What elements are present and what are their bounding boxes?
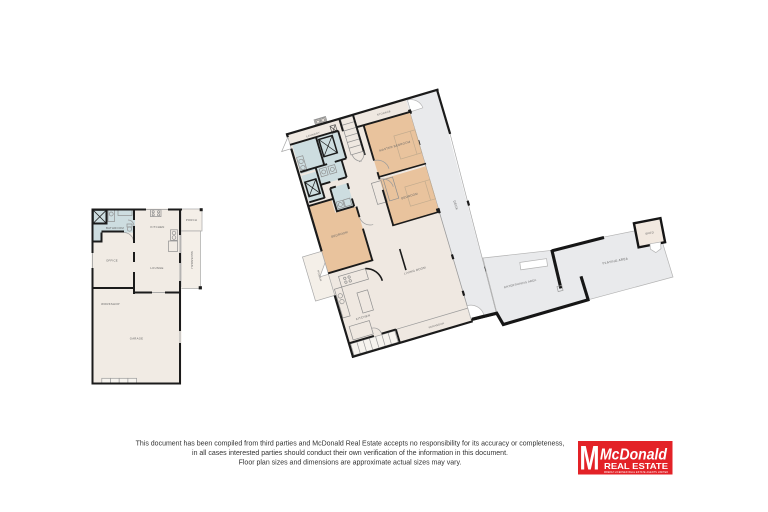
svg-text:WORKSHOP: WORKSHOP	[101, 302, 120, 306]
svg-text:Floor plan sizes and dimension: Floor plan sizes and dimensions are appr…	[239, 460, 462, 467]
svg-text:OFFICE: OFFICE	[106, 259, 118, 263]
svg-text:PORCH: PORCH	[186, 218, 197, 222]
svg-text:in all cases interested partie: in all cases interested parties should c…	[192, 450, 508, 457]
svg-text:BATHROOM: BATHROOM	[106, 226, 124, 230]
svg-text:This document has been compile: This document has been compiled from thi…	[136, 441, 565, 448]
svg-text:KITCHEN: KITCHEN	[150, 225, 164, 229]
svg-text:LOUNGE: LOUNGE	[150, 266, 163, 270]
svg-text:REAL ESTATE: REAL ESTATE	[604, 461, 668, 471]
svg-text:VERANDAH: VERANDAH	[190, 251, 194, 269]
svg-text:M: M	[580, 440, 600, 478]
svg-text:MREINZ LICENSED REAL ESTATE: MREINZ LICENSED REAL ESTATE AGENTS LIMIT…	[604, 471, 668, 474]
svg-text:GARAGE: GARAGE	[130, 337, 143, 341]
